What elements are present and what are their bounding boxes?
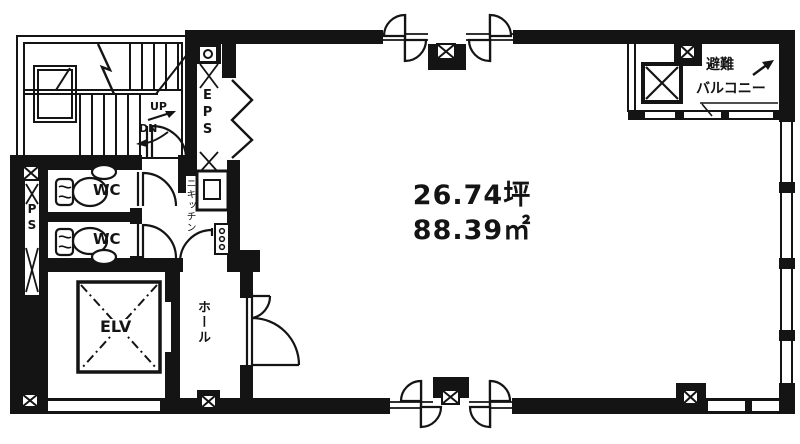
balcony-railing-slot bbox=[684, 112, 721, 118]
hall-wall-below-door bbox=[240, 365, 253, 414]
balcony-railing-slot bbox=[729, 112, 773, 118]
up-label: UP bbox=[150, 101, 167, 112]
dn-label: DN bbox=[139, 123, 157, 134]
wc-upper-door bbox=[138, 172, 176, 206]
staircase bbox=[17, 36, 189, 158]
balcony-label: バルコニー bbox=[696, 82, 766, 96]
dn-arrow-head bbox=[136, 139, 147, 147]
window-leaf bbox=[401, 381, 421, 401]
up-arrow bbox=[148, 113, 170, 120]
stair-break-line bbox=[98, 44, 114, 94]
column-x-balcony bbox=[680, 45, 695, 59]
bottom-left-slot bbox=[48, 401, 160, 411]
right-window-mullion bbox=[779, 258, 795, 269]
right-window-mullion bbox=[779, 330, 795, 341]
column-x-top-center bbox=[437, 44, 455, 59]
window-leaf bbox=[490, 381, 510, 401]
window-leaf bbox=[469, 40, 490, 61]
right-window-mullion bbox=[779, 182, 795, 193]
mini-kitchen-label: ミニキッチン bbox=[184, 167, 194, 233]
window-leaf bbox=[421, 407, 441, 427]
top-wall-right bbox=[513, 30, 795, 44]
eps-label: EPS bbox=[201, 88, 214, 139]
kitchen-unit-dot-2 bbox=[220, 237, 225, 242]
wc-upper-label: WC bbox=[93, 183, 121, 198]
column-x-ps-top bbox=[23, 166, 39, 180]
basin-lower bbox=[92, 250, 116, 264]
wc-divider-wall bbox=[44, 212, 142, 222]
top-wall-left bbox=[185, 30, 383, 44]
elevator-label: ELV bbox=[97, 319, 134, 335]
eps-right-wall bbox=[222, 30, 236, 78]
basin-upper bbox=[92, 165, 116, 179]
right-wall-top bbox=[779, 30, 795, 122]
main-room-double-door bbox=[247, 293, 299, 367]
column-x-bottom-left bbox=[22, 394, 38, 407]
wc-lower-label: WC bbox=[93, 232, 121, 247]
ps-label: PS bbox=[26, 202, 38, 234]
right-wall-windows bbox=[779, 122, 795, 398]
wc-lower-door bbox=[138, 224, 176, 258]
balcony-railing-slot bbox=[645, 112, 675, 118]
eps-folding-door bbox=[232, 80, 252, 158]
stair-lower-treads bbox=[80, 94, 140, 158]
kitchen-unit-dot-1 bbox=[220, 229, 225, 234]
kitchen-sink bbox=[204, 180, 220, 199]
ps-shaft bbox=[25, 180, 39, 295]
column-x-bottom-right bbox=[683, 390, 698, 404]
window-leaf bbox=[384, 15, 405, 36]
stair-upper-treads bbox=[130, 43, 178, 90]
window-leaf bbox=[470, 407, 490, 427]
kitchen-unit-dot-3 bbox=[220, 245, 225, 250]
evacuation-label: 避難 bbox=[706, 58, 734, 72]
area-square-meters: 88.39㎡ bbox=[382, 217, 562, 244]
bottom-right-slot-1 bbox=[708, 401, 745, 411]
area-tsubo: 26.74坪 bbox=[382, 182, 562, 209]
balcony-left-wall bbox=[628, 44, 635, 112]
kitchen-door bbox=[180, 228, 212, 262]
window-leaf bbox=[490, 15, 511, 36]
kitchen-corner-wall bbox=[227, 250, 260, 272]
elevator-door-notch bbox=[165, 302, 171, 352]
bottom-right-slot-2 bbox=[752, 401, 779, 411]
floor-plan: UP DN EPS PS WC WC ミニキッチン ELV ホール 26.74坪… bbox=[0, 0, 800, 444]
column-x-hall-bottom bbox=[201, 395, 216, 408]
window-leaf bbox=[405, 40, 426, 61]
hall-label: ホール bbox=[196, 300, 209, 345]
column-x-bottom-center bbox=[442, 390, 459, 404]
mini-kitchen-fixtures bbox=[197, 171, 229, 254]
